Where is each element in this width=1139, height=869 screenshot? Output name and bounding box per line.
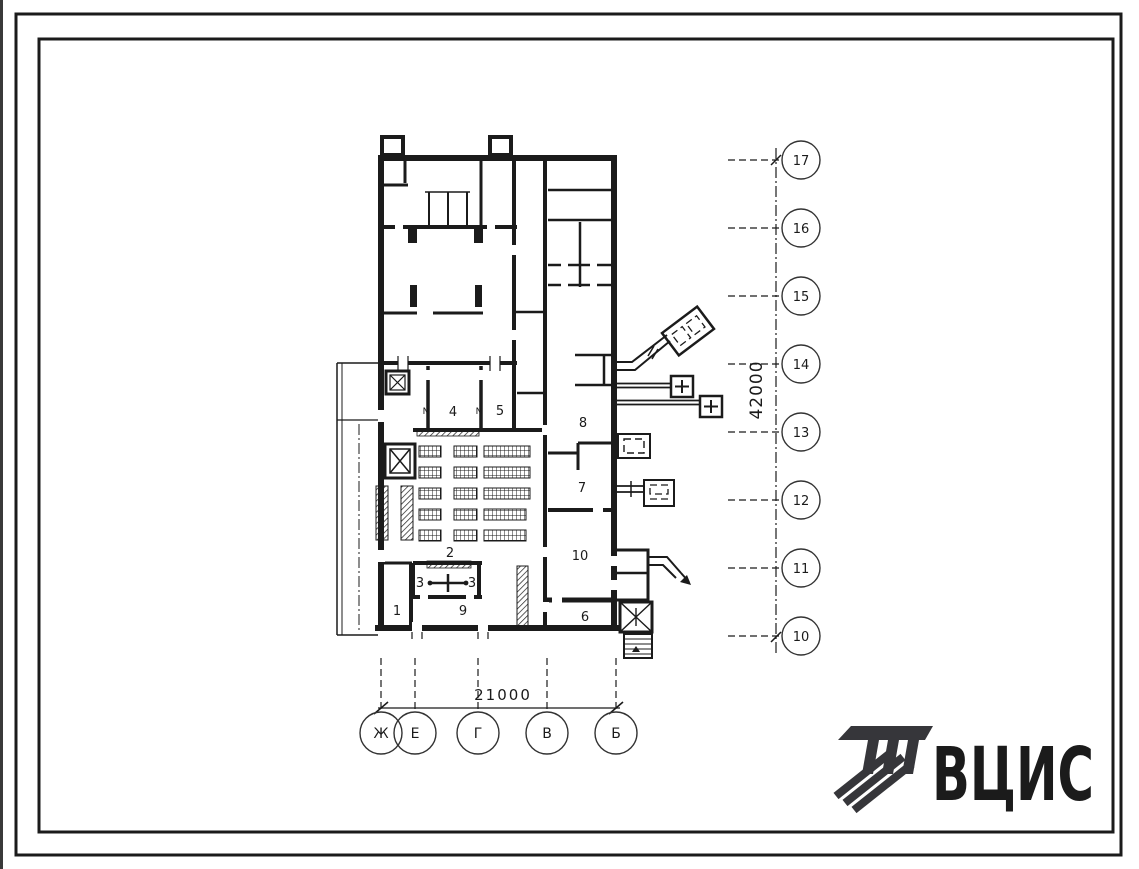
elevator-icon bbox=[386, 371, 409, 394]
axis-number-label: 11 bbox=[793, 562, 810, 577]
frame bbox=[16, 14, 1121, 855]
floor-plan: 123345678910NN bbox=[337, 137, 722, 658]
room-label: 5 bbox=[496, 404, 504, 419]
axis-letter-label: Ж bbox=[373, 726, 388, 742]
axis-letter-label: В bbox=[542, 726, 552, 742]
room-label: 9 bbox=[459, 604, 467, 619]
stair-icon bbox=[620, 602, 652, 658]
axis-number-label: 16 bbox=[793, 222, 810, 237]
axis-number-label: 15 bbox=[793, 290, 810, 305]
room-label: 10 bbox=[572, 549, 589, 564]
drawing-canvas: 123345678910NN 1716151413121110 42000 ЖЕ… bbox=[0, 0, 1139, 869]
axis-number-label: 17 bbox=[793, 154, 810, 169]
dimension-42000: 42000 bbox=[747, 360, 767, 419]
axis-number-label: 14 bbox=[793, 358, 810, 373]
scan-edge-artifact bbox=[0, 0, 3, 869]
door-mark-label: N bbox=[476, 407, 483, 417]
room-label: 2 bbox=[446, 546, 454, 561]
room-label: 1 bbox=[393, 604, 401, 619]
furniture-grid bbox=[419, 446, 530, 541]
door-mark-label: N bbox=[423, 407, 430, 417]
dimension-21000: 21000 bbox=[474, 686, 532, 704]
axis-letter-label: Г bbox=[474, 726, 483, 742]
axis-number-label: 13 bbox=[793, 426, 810, 441]
axis-bottom: ЖЕГВБ 21000 bbox=[360, 658, 637, 754]
elevator-icon bbox=[385, 444, 415, 478]
table-symbol bbox=[428, 574, 469, 592]
axis-letter-label: Е bbox=[411, 726, 420, 742]
loading-dock bbox=[337, 363, 378, 635]
columns bbox=[408, 227, 483, 307]
equipment-box bbox=[644, 480, 674, 506]
equipment-box bbox=[618, 434, 650, 458]
scanned-drawing-page: 123345678910NN 1716151413121110 42000 ЖЕ… bbox=[0, 0, 1139, 869]
logo-text: ВЦИС bbox=[932, 732, 1094, 818]
axis-right: 1716151413121110 42000 bbox=[728, 141, 820, 655]
axis-letter-label: Б bbox=[611, 726, 621, 742]
axis-number-label: 10 bbox=[793, 630, 810, 645]
logo-icon bbox=[836, 726, 933, 810]
equipment bbox=[614, 307, 722, 585]
tilted-hopper bbox=[662, 307, 714, 356]
room-label: 7 bbox=[578, 481, 586, 496]
logo: ВЦИС bbox=[836, 726, 1094, 818]
room-label: 8 bbox=[579, 416, 587, 431]
interior-walls bbox=[378, 155, 648, 628]
axis-number-label: 12 bbox=[793, 494, 810, 509]
room-label: 6 bbox=[581, 610, 589, 625]
room-label: 4 bbox=[449, 405, 457, 420]
room-label: 3 bbox=[468, 576, 476, 591]
room-label: 3 bbox=[416, 576, 424, 591]
